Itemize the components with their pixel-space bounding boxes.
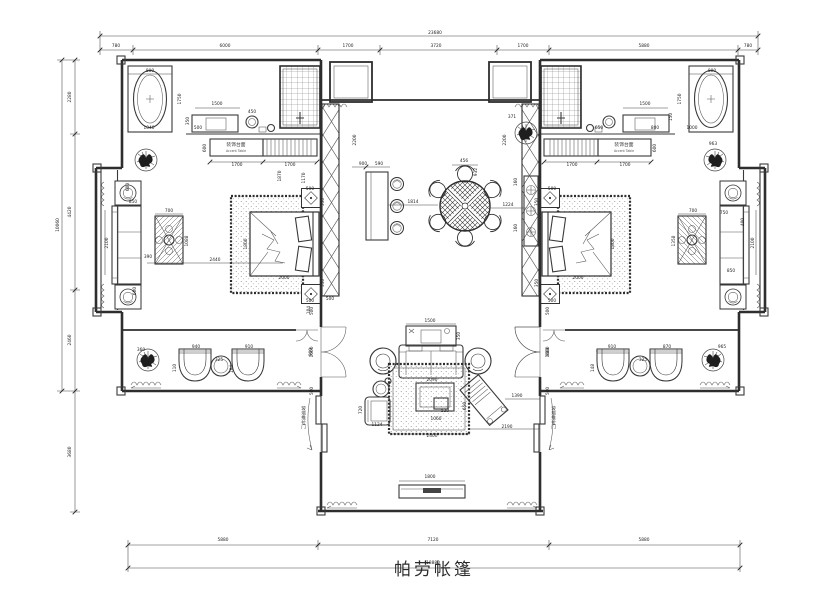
dim-label: 590 xyxy=(375,161,383,167)
dim-label: 2100 xyxy=(104,237,110,248)
dim-label: 4420 xyxy=(67,206,73,217)
dim-label: 1700 xyxy=(567,162,578,168)
dim-label: 148 xyxy=(590,364,596,372)
dim-label: 23680 xyxy=(428,30,442,36)
tv-bench xyxy=(399,485,465,498)
dim-label: 1700 xyxy=(343,43,354,49)
dim-label: 910 xyxy=(608,344,616,350)
dim-label: 910 xyxy=(245,344,253,350)
dim-label: 1800 xyxy=(425,474,436,480)
dim-label: 371 xyxy=(508,114,516,120)
closets xyxy=(330,62,531,102)
dim-label: 3680 xyxy=(67,446,73,457)
dim-label: 650 xyxy=(595,125,603,131)
accent-table-label-en-right: Accent Table xyxy=(614,149,634,153)
dim-label: 2400 xyxy=(427,433,438,439)
accent-table-label-cn-left: 装饰台面 xyxy=(226,141,245,148)
dim-label: 2200 xyxy=(352,134,358,145)
dim-label: 1358 xyxy=(671,235,677,246)
dim-label: 1700 xyxy=(620,162,631,168)
dim-label: 1224 xyxy=(503,202,514,208)
floor-plan-page: 装饰台面 Accent Table 装饰台面 Accent Table 玻璃推拉… xyxy=(0,0,837,592)
dim-label: 940 xyxy=(192,344,200,350)
dim-label: 1040 xyxy=(144,125,155,131)
dim-label: 500 xyxy=(309,387,315,395)
dim-label: 963 xyxy=(709,141,717,147)
dim-label: 1500 xyxy=(425,318,436,324)
dim-label: 2000 xyxy=(279,275,290,281)
dim-label: 700 xyxy=(165,208,173,214)
dim-label: 350 xyxy=(534,279,540,287)
side-table xyxy=(373,378,391,397)
dim-label: 2200 xyxy=(502,134,508,145)
dim-label: 2190 xyxy=(502,424,513,430)
dim-label: 1000 xyxy=(687,125,698,131)
dim-label: 500 xyxy=(548,298,556,304)
dim-label: 160 xyxy=(513,178,519,186)
dim-label: 600 xyxy=(202,144,208,152)
dim-label: 184 xyxy=(229,365,235,373)
dim-label: 1800 xyxy=(243,238,249,249)
dim-label: 1814 xyxy=(408,199,419,205)
dim-label: 7120 xyxy=(428,537,439,543)
dim-label: 1390 xyxy=(512,393,523,399)
dim-label: 1700 xyxy=(285,162,296,168)
bar-counter xyxy=(366,172,404,240)
dim-label: 1500 xyxy=(640,101,651,107)
dim-label: 850 xyxy=(727,268,735,274)
dim-label: 2440 xyxy=(210,257,221,263)
dim-label: 800 xyxy=(651,125,659,131)
dim-label: 160 xyxy=(513,224,519,232)
dim-label: 2000 xyxy=(573,275,584,281)
dim-label: 5880 xyxy=(639,537,650,543)
dim-label: 900 xyxy=(359,161,367,167)
floor-plan-drawing: 装饰台面 Accent Table 装饰台面 Accent Table 玻璃推拉… xyxy=(0,0,837,592)
sliding-door-label-left: 玻璃推拉门 xyxy=(301,405,306,430)
dim-label: 5880 xyxy=(218,537,229,543)
dining-table xyxy=(426,166,505,247)
dim-label: 932 xyxy=(473,168,479,176)
dim-label: 965 xyxy=(718,344,726,350)
dim-label: 1600 xyxy=(309,346,315,357)
dim-label: 2460 xyxy=(67,334,73,345)
dim-label: 800 xyxy=(708,68,716,74)
dim-label: 500 xyxy=(548,186,556,192)
dim-label: 350 xyxy=(320,279,326,287)
dim-label: 1088 xyxy=(184,235,190,246)
drawing-title: 帕劳帐篷 xyxy=(394,560,474,580)
dim-label: 350 xyxy=(534,198,540,206)
dim-label: 500 xyxy=(545,307,551,315)
dim-label: 1800 xyxy=(610,238,616,249)
dim-label: 390 xyxy=(144,254,152,260)
dim-label: 2100 xyxy=(750,237,756,248)
dim-label: 720 xyxy=(358,406,364,414)
dim-label: 2090 xyxy=(427,377,438,383)
dim-label: 650 xyxy=(462,402,468,410)
dim-label: 350 xyxy=(185,117,191,125)
tv-console xyxy=(406,326,456,346)
dim-label: 3720 xyxy=(431,43,442,49)
lounge-armchair xyxy=(365,397,390,425)
dim-label: 6000 xyxy=(220,43,231,49)
dim-label: 456 xyxy=(460,158,468,164)
living-rug xyxy=(389,364,469,434)
dim-label: 10060 xyxy=(55,218,61,232)
dim-label: 325 xyxy=(639,357,647,363)
accent-table-label-cn-right: 装饰台面 xyxy=(614,141,633,148)
dim-label: 750 xyxy=(720,210,728,216)
dim-label: 350 xyxy=(456,332,462,340)
dim-label: 870 xyxy=(663,344,671,350)
dim-label: 1750 xyxy=(177,93,183,104)
dim-label: 520 xyxy=(441,408,449,414)
dim-label: 600 xyxy=(125,183,131,191)
dim-label: 800 xyxy=(146,68,154,74)
dim-label: 325 xyxy=(215,357,223,363)
dim-label: 1700 xyxy=(232,162,243,168)
dim-label: 500 xyxy=(309,307,315,315)
dim-label: 1700 xyxy=(518,43,529,49)
dim-label: 400 xyxy=(740,218,746,226)
dimension-labels: 2368078060001700372017005880780588071205… xyxy=(55,30,756,566)
dim-label: 600 xyxy=(652,144,658,152)
dim-label: 780 xyxy=(744,43,752,49)
dim-label: 360 xyxy=(137,347,145,353)
dim-label: 1170 xyxy=(301,172,307,183)
dim-label: 450 xyxy=(248,109,256,115)
dim-label: 150 xyxy=(668,113,674,121)
dim-label: 1600 xyxy=(545,346,551,357)
accent-table-label-en-left: Accent Table xyxy=(226,149,246,153)
dim-label: 600 xyxy=(132,287,138,295)
dim-label: 500 xyxy=(326,296,334,302)
dim-label: 1060 xyxy=(431,416,442,422)
dim-label: 2280 xyxy=(67,91,73,102)
dim-label: 500 xyxy=(545,387,551,395)
dim-label: 500 xyxy=(194,125,202,131)
dim-label: 350 xyxy=(320,198,326,206)
dim-label: 500 xyxy=(306,186,314,192)
dim-label: 500 xyxy=(306,298,314,304)
dim-label: 700 xyxy=(689,208,697,214)
dim-label: 850 xyxy=(129,199,137,205)
dim-label: 1870 xyxy=(277,170,283,181)
dim-label: 1124 xyxy=(372,422,383,428)
dim-label: 1750 xyxy=(677,93,683,104)
dim-label: 1500 xyxy=(212,101,223,107)
sliding-door-label-right: 玻璃推拉门 xyxy=(551,405,556,430)
central-hall xyxy=(316,60,545,515)
dim-label: 5880 xyxy=(639,43,650,49)
dim-label: 780 xyxy=(112,43,120,49)
dimension-lines xyxy=(57,31,760,572)
dim-label: 110 xyxy=(172,364,178,372)
